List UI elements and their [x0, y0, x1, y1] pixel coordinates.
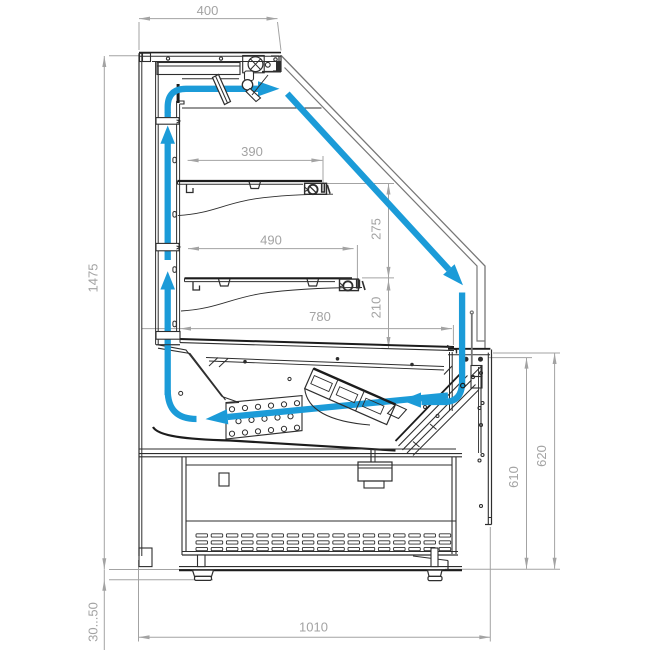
svg-text:490: 490	[260, 233, 282, 248]
svg-text:610: 610	[506, 466, 521, 488]
svg-text:620: 620	[534, 445, 549, 467]
svg-text:30...50: 30...50	[86, 602, 101, 642]
svg-text:1010: 1010	[299, 620, 328, 635]
svg-text:1475: 1475	[86, 264, 101, 293]
svg-text:210: 210	[369, 297, 384, 319]
svg-text:400: 400	[197, 3, 219, 18]
svg-text:780: 780	[309, 309, 331, 324]
svg-text:390: 390	[241, 144, 263, 159]
svg-text:275: 275	[369, 218, 384, 240]
